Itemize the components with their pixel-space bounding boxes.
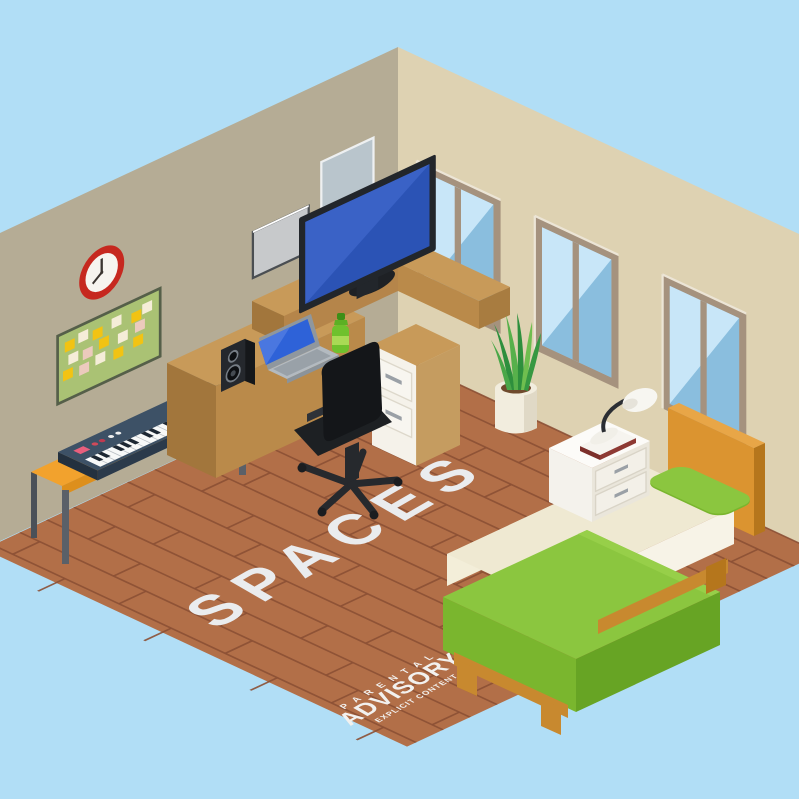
- pedestal-side-wood: [416, 345, 460, 466]
- chair-wheel: [394, 478, 403, 487]
- desk-pedestal: [372, 324, 460, 466]
- bottle-neck: [334, 320, 348, 325]
- isometric-room-scene: SPACES P A R E N T A L ADVISORY EXPLICIT…: [0, 0, 799, 799]
- bottle-label: [332, 336, 349, 345]
- bottle-cap: [337, 313, 345, 320]
- chair-wheel: [298, 464, 307, 473]
- chair-wheel: [318, 508, 327, 517]
- speaker-side: [245, 339, 255, 385]
- bench-leg: [31, 472, 37, 538]
- album-cover: SPACES P A R E N T A L ADVISORY EXPLICIT…: [0, 0, 799, 799]
- bench-leg: [62, 490, 69, 564]
- chair-post: [345, 442, 359, 484]
- headboard-edge: [754, 443, 765, 536]
- chair-wheel: [370, 511, 379, 520]
